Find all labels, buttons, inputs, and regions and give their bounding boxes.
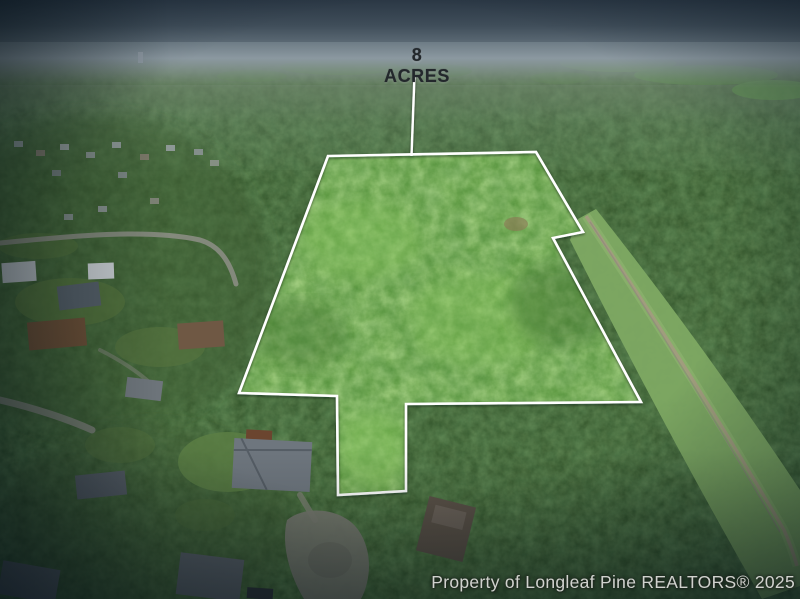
vignette [0,0,800,599]
aerial-scene [0,0,800,599]
realtor-watermark: Property of Longleaf Pine REALTORS® 2025 [431,572,795,593]
aerial-photo: 8 ACRES Property of Longleaf Pine REALTO… [0,0,800,599]
acreage-label: 8 ACRES [377,45,457,87]
